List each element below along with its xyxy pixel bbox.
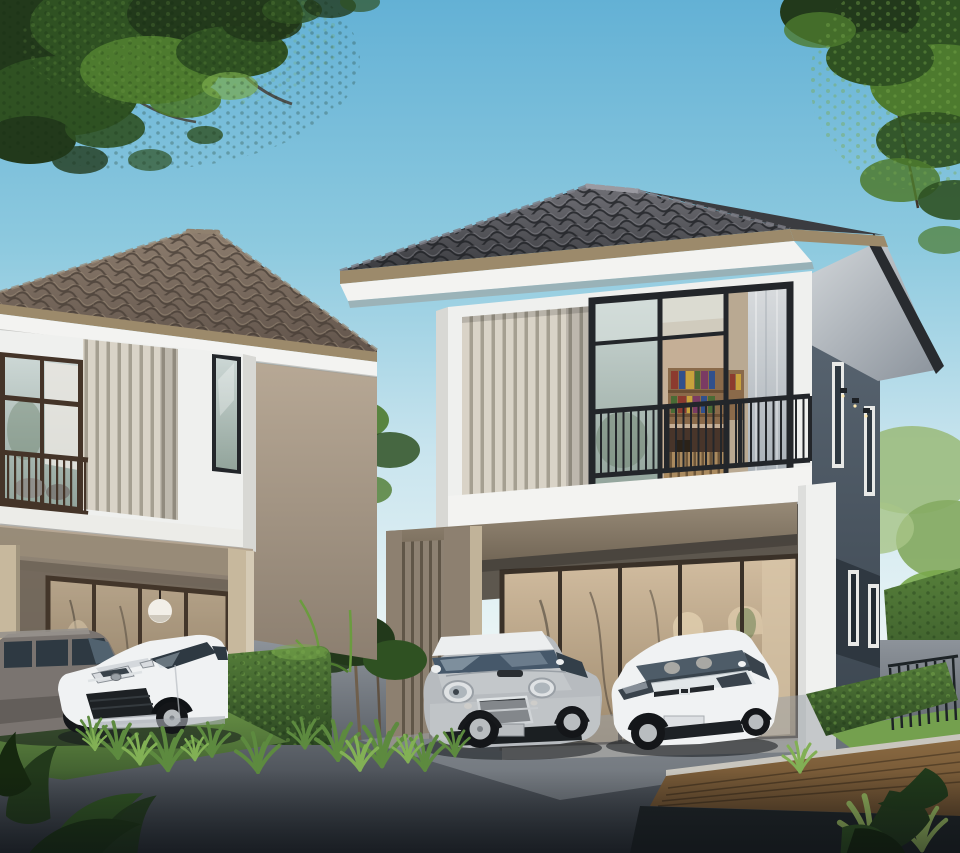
- right-house-upper-floor: [436, 271, 812, 535]
- scene: [0, 0, 960, 853]
- left-house-upper-floor: [0, 330, 256, 552]
- tall-window-left-house: [212, 354, 241, 474]
- balcony-left: [0, 452, 88, 514]
- rendering-canvas: Dusk architectural rendering of two mode…: [0, 0, 960, 853]
- vignette: [0, 770, 960, 853]
- left-house-side-wall: [253, 362, 377, 660]
